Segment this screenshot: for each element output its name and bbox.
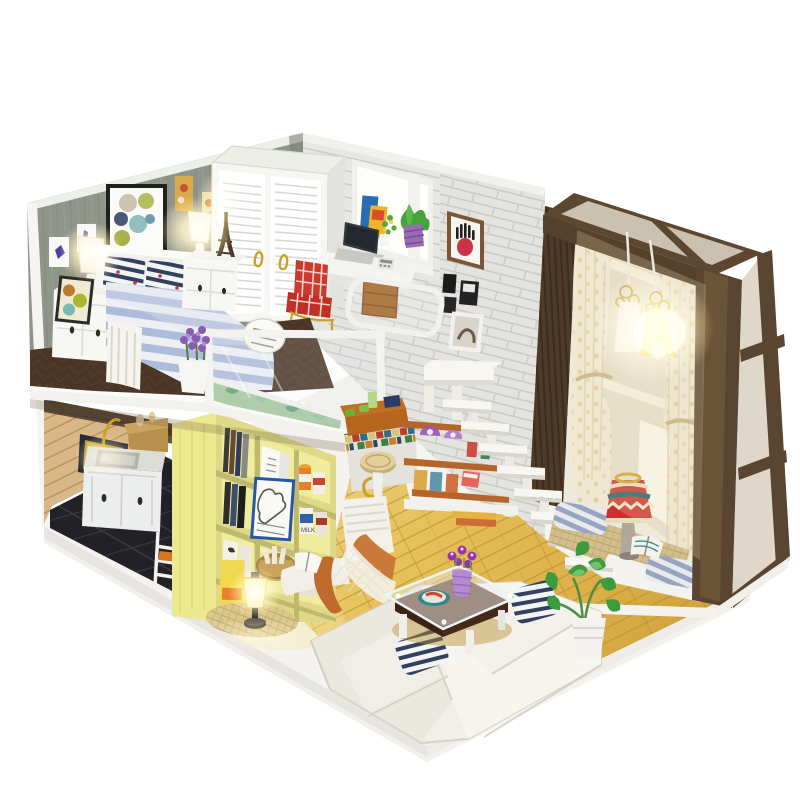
svg-text:MILK: MILK xyxy=(301,528,315,534)
